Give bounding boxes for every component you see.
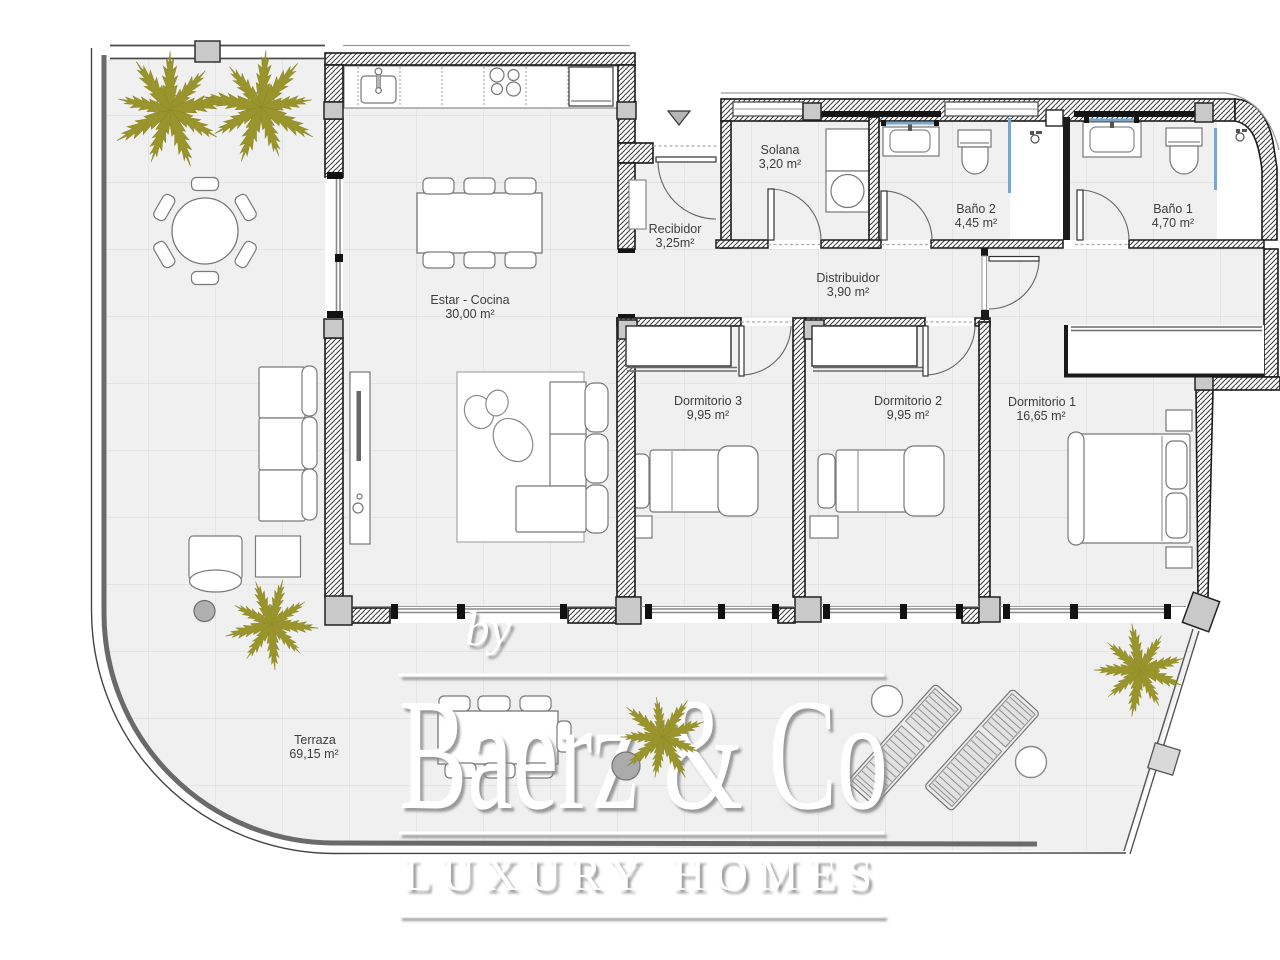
svg-text:4,70 m²: 4,70 m² (1152, 216, 1194, 230)
svg-text:9,95 m²: 9,95 m² (687, 408, 729, 422)
svg-text:3,90 m²: 3,90 m² (827, 285, 869, 299)
svg-text:3,25m²: 3,25m² (656, 236, 695, 250)
svg-text:3,20 m²: 3,20 m² (759, 157, 801, 171)
svg-text:9,95 m²: 9,95 m² (887, 408, 929, 422)
svg-text:Distribuidor: Distribuidor (816, 271, 879, 285)
svg-text:Terraza: Terraza (294, 733, 336, 747)
svg-text:Dormitorio 2: Dormitorio 2 (874, 394, 942, 408)
svg-text:LUXURY HOMES: LUXURY HOMES (404, 850, 886, 900)
svg-text:by: by (465, 601, 512, 656)
svg-text:Recibidor: Recibidor (649, 222, 702, 236)
svg-text:16,65 m²: 16,65 m² (1016, 409, 1065, 423)
svg-text:Baño 1: Baño 1 (1153, 202, 1193, 216)
svg-text:Baño 2: Baño 2 (956, 202, 996, 216)
svg-text:69,15 m²: 69,15 m² (289, 747, 338, 761)
svg-text:Dormitorio 1: Dormitorio 1 (1008, 395, 1076, 409)
svg-text:Solana: Solana (761, 143, 800, 157)
svg-text:Estar - Cocina: Estar - Cocina (430, 293, 509, 307)
svg-text:30,00 m²: 30,00 m² (445, 307, 494, 321)
svg-text:Dormitorio 3: Dormitorio 3 (674, 394, 742, 408)
svg-text:4,45 m²: 4,45 m² (955, 216, 997, 230)
